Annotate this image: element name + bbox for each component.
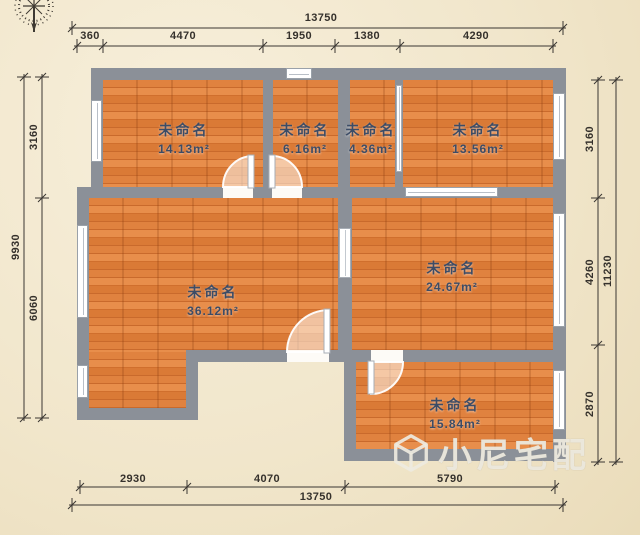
dim-label: 1380 bbox=[354, 30, 380, 42]
dim-label: 1950 bbox=[286, 30, 312, 42]
dim-label: 4260 bbox=[584, 259, 596, 285]
dim-label: 4070 bbox=[254, 473, 280, 485]
dim-label: 5790 bbox=[437, 473, 463, 485]
dim-label: 3160 bbox=[584, 126, 596, 152]
dim-label: 2930 bbox=[120, 473, 146, 485]
dim-label-bottom-overall: 13750 bbox=[300, 491, 333, 503]
dim-label: 2870 bbox=[584, 391, 596, 417]
dim-label: 4290 bbox=[463, 30, 489, 42]
floor-plan-canvas: 13750 360 4470 1950 1380 4290 9930 3160 … bbox=[0, 0, 640, 535]
dim-label: 360 bbox=[80, 30, 100, 42]
dim-label-right-overall: 11230 bbox=[602, 255, 614, 287]
dimension-lines bbox=[0, 0, 640, 535]
dim-label: 3160 bbox=[28, 124, 40, 150]
dim-label-left-overall: 9930 bbox=[10, 234, 22, 260]
dim-label: 4470 bbox=[170, 30, 196, 42]
dim-label: 6060 bbox=[28, 295, 40, 321]
dim-label-top-overall: 13750 bbox=[305, 12, 338, 24]
